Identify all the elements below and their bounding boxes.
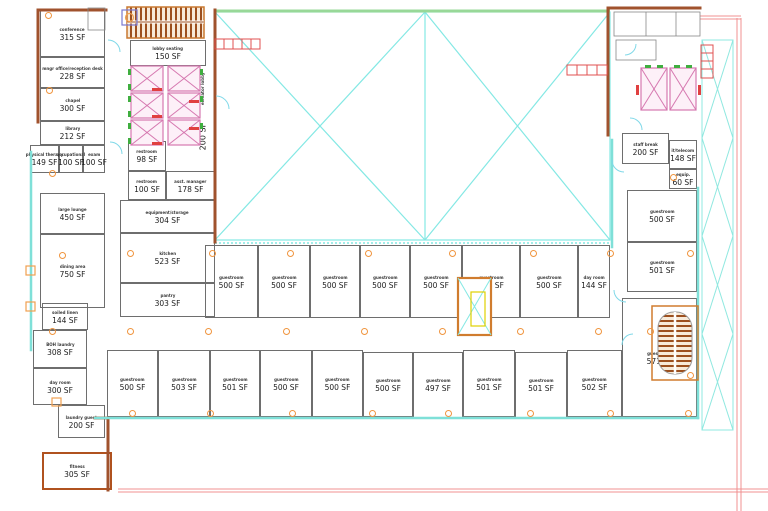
room-label: conference bbox=[60, 27, 85, 31]
room-area: 212 SF bbox=[60, 132, 86, 141]
room-guestroom: guestroom500 SF bbox=[258, 245, 310, 318]
room-label: guestroom bbox=[582, 377, 606, 381]
room-label: restroom bbox=[137, 179, 158, 183]
room-label: laundry guest bbox=[66, 415, 97, 419]
column-marker bbox=[127, 250, 134, 257]
atrium-skylight bbox=[215, 12, 610, 240]
room-label: kitchen bbox=[159, 252, 176, 256]
room-label: equipment/storage bbox=[146, 210, 189, 214]
stair-top bbox=[127, 7, 204, 38]
column-marker bbox=[45, 12, 52, 19]
room-label: guestroom bbox=[647, 351, 671, 355]
room-label: guestroom bbox=[376, 378, 400, 382]
column-marker bbox=[445, 410, 452, 417]
room-guestroom: guestroom500 SF bbox=[107, 350, 158, 417]
room-kitchen: kitchen523 SF bbox=[120, 233, 215, 283]
room-exam: exam100 SF bbox=[83, 145, 105, 173]
room-label: guestroom bbox=[650, 261, 674, 265]
room-area: 750 SF bbox=[60, 270, 86, 279]
room-area: 308 SF bbox=[47, 348, 73, 357]
column-marker bbox=[365, 250, 372, 257]
room-guestroom: guestroom500 SF bbox=[363, 352, 413, 417]
room-label: day room bbox=[583, 275, 604, 279]
room-area: 315 SF bbox=[60, 33, 86, 42]
room-area: 500 SF bbox=[325, 383, 351, 392]
column-marker bbox=[209, 250, 216, 257]
room-laundry-guest: laundry guest200 SF bbox=[58, 405, 105, 438]
room-area: 98 SF bbox=[136, 155, 157, 164]
room-guestroom: guestroom501 SF bbox=[210, 350, 260, 417]
room-label: guestroom bbox=[272, 275, 296, 279]
room-day-room: day room300 SF bbox=[33, 368, 87, 405]
room-dining-area: dining area750 SF bbox=[40, 234, 105, 308]
room-area: 500 SF bbox=[273, 383, 299, 392]
column-marker bbox=[530, 250, 537, 257]
room-guestroom: guestroom571 SF bbox=[622, 298, 697, 417]
room-label: pantry bbox=[160, 294, 175, 298]
room-label: guestroom bbox=[529, 379, 553, 383]
room-it-telecom: it/telecom148 SF bbox=[669, 140, 697, 169]
column-marker bbox=[687, 372, 694, 379]
room-large-lounge: large lounge450 SF bbox=[40, 193, 105, 234]
room-area: 500 SF bbox=[372, 281, 398, 290]
room-label: mngr office/reception desk bbox=[42, 66, 103, 70]
room-area: 300 SF bbox=[47, 386, 73, 395]
room-label: guestroom bbox=[650, 210, 674, 214]
room-area: 502 SF bbox=[582, 383, 608, 392]
column-marker bbox=[127, 328, 134, 335]
room-area: 200 SF bbox=[633, 148, 659, 157]
room-fitness: fitness305 SF bbox=[42, 452, 112, 490]
room-guestroom: guestroom503 SF bbox=[158, 350, 210, 417]
column-marker bbox=[595, 328, 602, 335]
room-label: guestroom bbox=[223, 377, 247, 381]
room-label: fitness bbox=[69, 465, 84, 469]
room-label: guestroom bbox=[537, 275, 561, 279]
room-label: guestroom bbox=[323, 275, 347, 279]
room-area: 571 SF bbox=[647, 357, 673, 366]
room-guestroom: guestroom502 SF bbox=[567, 350, 622, 417]
room-guestroom: guestroom500 SF bbox=[310, 245, 360, 318]
room-area: 523 SF bbox=[155, 257, 181, 266]
column-marker bbox=[205, 328, 212, 335]
room-label: guestroom bbox=[426, 379, 450, 383]
room-area: 305 SF bbox=[64, 470, 90, 479]
room-area: 501 SF bbox=[476, 383, 502, 392]
room-label: guestroom bbox=[477, 377, 501, 381]
room-label: guestroom bbox=[172, 377, 196, 381]
room-label: BOH laundry bbox=[46, 343, 74, 347]
room-area: 500 SF bbox=[649, 215, 675, 224]
room-label: guestroom bbox=[325, 377, 349, 381]
room-area: 100 SF bbox=[134, 185, 160, 194]
column-marker bbox=[449, 250, 456, 257]
room-area: 200 SF bbox=[69, 421, 95, 430]
room-label: lobby seating bbox=[153, 47, 184, 51]
room-area: 501 SF bbox=[528, 384, 554, 393]
room-staff-break: staff break200 SF bbox=[622, 133, 669, 164]
room-boh-laundry: BOH laundry308 SF bbox=[33, 330, 87, 368]
column-marker bbox=[439, 328, 446, 335]
room-label: guestroom bbox=[373, 275, 397, 279]
room-area: 100 SF bbox=[58, 158, 84, 167]
floor-plan-canvas: conference315 SFmngr office/reception de… bbox=[0, 0, 768, 511]
room-guestroom: guestroom500 SF bbox=[627, 190, 697, 242]
room-area: 500 SF bbox=[478, 281, 504, 290]
room-restroom: restroom100 SF bbox=[128, 171, 166, 200]
room-guestroom: guestroom501 SF bbox=[515, 352, 567, 418]
room-guestroom: guestroom500 SF bbox=[312, 350, 363, 417]
column-marker bbox=[283, 328, 290, 335]
room-restroom: restroom98 SF bbox=[128, 141, 166, 171]
room-area: 500 SF bbox=[219, 281, 245, 290]
room-label: guestroom bbox=[424, 275, 448, 279]
room-label: guestroom bbox=[479, 275, 503, 279]
column-marker bbox=[49, 170, 56, 177]
room-asst-manager: asst. manager178 SF bbox=[166, 171, 215, 200]
room-area: 148 SF bbox=[670, 154, 696, 163]
room-guestroom: guestroom500 SF bbox=[260, 350, 312, 417]
elevator-bank-right bbox=[636, 65, 701, 110]
column-marker bbox=[129, 410, 136, 417]
room-equipment-storage: equipment/storage304 SF bbox=[120, 200, 215, 233]
column-marker bbox=[369, 410, 376, 417]
room-area: 100 SF bbox=[81, 158, 107, 167]
room-guestroom: guestroom501 SF bbox=[627, 242, 697, 292]
column-marker bbox=[361, 328, 368, 335]
room-area: 178 SF bbox=[178, 185, 204, 194]
room-label: library bbox=[65, 127, 80, 131]
room-guestroom: guestroom497 SF bbox=[413, 352, 463, 418]
room-label: it/telecom bbox=[672, 148, 695, 152]
room-area: 500 SF bbox=[271, 281, 297, 290]
room-area: 200 SF bbox=[199, 123, 208, 151]
room-label: guestroom bbox=[274, 377, 298, 381]
room-area: 228 SF bbox=[60, 72, 86, 81]
room-area: 300 SF bbox=[60, 104, 86, 113]
room-label: guestroom bbox=[219, 275, 243, 279]
room-area: 450 SF bbox=[60, 213, 86, 222]
room-label: restroom bbox=[137, 150, 158, 154]
room-label: dining area bbox=[60, 265, 86, 269]
room-area: 149 SF bbox=[32, 158, 58, 167]
room-label: asst. manager bbox=[174, 179, 206, 183]
room-area: 144 SF bbox=[52, 316, 78, 325]
room-area: 497 SF bbox=[425, 384, 451, 393]
room-label: day room bbox=[49, 380, 70, 384]
room-guestroom: guestroom500 SF bbox=[520, 245, 578, 318]
column-marker bbox=[46, 87, 53, 94]
room-label: guestroom bbox=[120, 377, 144, 381]
room-label: soiled linen bbox=[52, 310, 78, 314]
room-library: library212 SF bbox=[40, 121, 105, 145]
room-area: 150 SF bbox=[155, 52, 181, 61]
column-marker bbox=[49, 328, 56, 335]
room-mngr-office-reception-desk: mngr office/reception desk228 SF bbox=[40, 57, 105, 88]
column-marker bbox=[527, 410, 534, 417]
room-area: 500 SF bbox=[120, 383, 146, 392]
column-marker bbox=[287, 250, 294, 257]
column-marker bbox=[670, 174, 677, 181]
room-elevator-lobby: 200 SFelevator lobby bbox=[190, 62, 216, 145]
column-marker bbox=[607, 410, 614, 417]
column-marker bbox=[685, 410, 692, 417]
room-label: elevator lobby bbox=[201, 73, 205, 106]
column-marker bbox=[207, 410, 214, 417]
room-label: occupational bbox=[57, 153, 86, 157]
room-area: 500 SF bbox=[536, 281, 562, 290]
column-marker bbox=[59, 252, 66, 259]
room-guestroom: guestroom501 SF bbox=[463, 350, 515, 417]
room-area: 501 SF bbox=[222, 383, 248, 392]
room-area: 501 SF bbox=[649, 266, 675, 275]
column-marker bbox=[687, 250, 694, 257]
room-area: 144 SF bbox=[581, 281, 607, 290]
room-physical-therapy: physical therapy149 SF bbox=[30, 145, 59, 173]
room-area: 500 SF bbox=[423, 281, 449, 290]
vestibule-marker bbox=[122, 10, 137, 25]
room-day-room: day room144 SF bbox=[578, 245, 610, 318]
room-area: 503 SF bbox=[171, 383, 197, 392]
room-area: 304 SF bbox=[155, 216, 181, 225]
room-label: chapel bbox=[65, 98, 80, 102]
room-soiled-linen: soiled linen144 SF bbox=[42, 303, 88, 330]
room-pantry: pantry303 SF bbox=[120, 283, 215, 317]
ramp-strip bbox=[702, 40, 733, 430]
room-occupational: occupational100 SF bbox=[59, 145, 83, 173]
room-area: 500 SF bbox=[322, 281, 348, 290]
room-label: staff break bbox=[633, 142, 658, 146]
room-area: 303 SF bbox=[155, 299, 181, 308]
exit-ladders bbox=[215, 39, 713, 78]
column-marker bbox=[607, 250, 614, 257]
column-marker bbox=[647, 328, 654, 335]
column-marker bbox=[517, 328, 524, 335]
room-label: large lounge bbox=[58, 207, 86, 211]
column-marker bbox=[289, 410, 296, 417]
room-label: equip. bbox=[676, 173, 690, 177]
room-guestroom: guestroom500 SF bbox=[462, 245, 520, 318]
room-label: exam bbox=[88, 153, 100, 157]
room-area: 500 SF bbox=[375, 384, 401, 393]
